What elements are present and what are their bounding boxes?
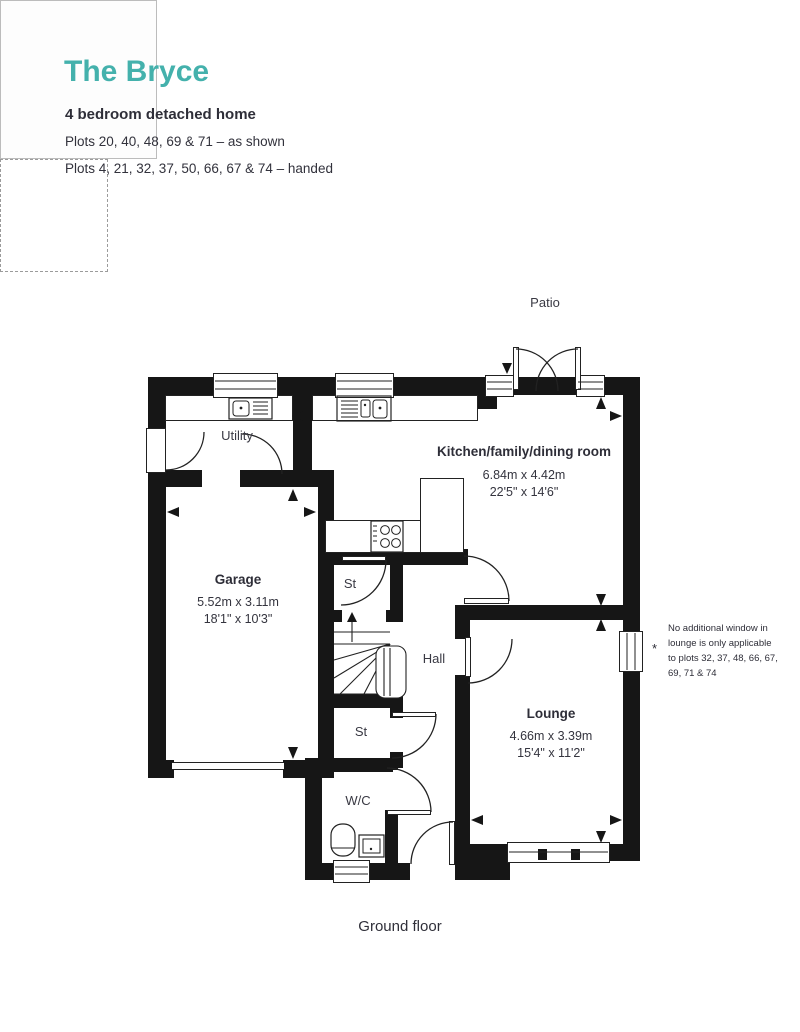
garage-dims-imperial: 18'1" x 10'3": [204, 612, 273, 626]
store-bottom-door-arc: [392, 714, 436, 758]
store-bottom-label: St: [355, 724, 367, 739]
wc-door-arc: [387, 768, 431, 812]
kitchen-sink-icon: [337, 396, 391, 421]
stairs-up-arrow: [347, 612, 357, 622]
utility-label: Utility: [221, 428, 253, 443]
lounge-dims-imperial: 15'4" x 11'2": [517, 746, 585, 760]
lounge-label: Lounge: [527, 706, 576, 721]
toilet-icon: [331, 824, 355, 856]
lounge-dims-metric: 4.66m x 3.39m: [510, 729, 593, 743]
basin-icon: [359, 835, 384, 857]
note-asterisk: *: [652, 641, 657, 656]
fixtures: [229, 396, 403, 857]
wc-label: W/C: [345, 793, 370, 808]
store-top-label: St: [344, 576, 356, 591]
kitchen-label: Kitchen/family/dining room: [437, 444, 611, 459]
lounge-door-arc: [468, 639, 512, 683]
stairs: [334, 618, 406, 698]
utility-external-door-arc: [166, 432, 204, 470]
utility-sink-icon: [229, 398, 272, 419]
kitchen-door-arc: [464, 556, 509, 601]
garage-dims-metric: 5.52m x 3.11m: [197, 595, 279, 609]
garage-label: Garage: [215, 572, 262, 587]
front-door-arc: [411, 822, 453, 864]
plan-linework-layer: [0, 0, 800, 1032]
floor-caption: Ground floor: [358, 918, 441, 935]
lounge-window-note: No additional window in lounge is only a…: [668, 621, 782, 681]
hob-icon: [371, 521, 403, 552]
kitchen-dims-imperial: 22'5" x 14'6": [490, 485, 559, 499]
floorplan: Patio: [0, 0, 800, 272]
hall-label: Hall: [423, 651, 445, 666]
kitchen-dims-metric: 6.84m x 4.42m: [483, 468, 566, 482]
